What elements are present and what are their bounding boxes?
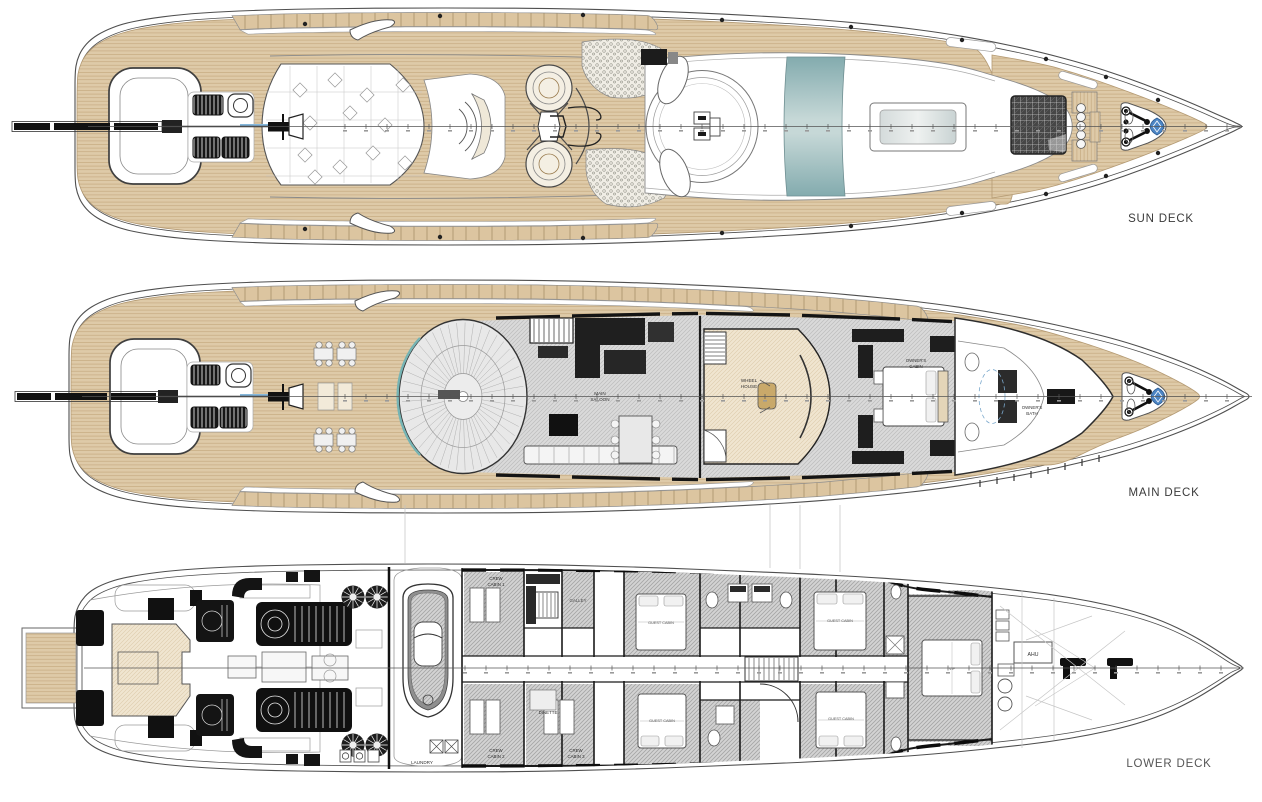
- svg-text:GALLEY: GALLEY: [569, 598, 586, 603]
- svg-text:GUEST CABIN: GUEST CABIN: [649, 719, 675, 723]
- svg-text:OWNER'S: OWNER'S: [1022, 405, 1043, 410]
- svg-text:AHU: AHU: [1028, 652, 1039, 658]
- svg-text:CABIN 3: CABIN 3: [567, 754, 585, 759]
- svg-text:CABIN 1: CABIN 1: [487, 582, 505, 587]
- svg-text:HOUSE: HOUSE: [741, 384, 757, 389]
- svg-text:MAIN DECK: MAIN DECK: [1128, 487, 1199, 499]
- svg-text:CREW: CREW: [569, 748, 583, 753]
- svg-text:WHEEL: WHEEL: [741, 378, 758, 383]
- svg-text:CABIN: CABIN: [909, 364, 922, 369]
- svg-text:OWNER'S: OWNER'S: [906, 358, 927, 363]
- svg-text:GUEST CABIN: GUEST CABIN: [828, 717, 854, 721]
- svg-text:CABIN 2: CABIN 2: [487, 754, 505, 759]
- svg-text:SALOON: SALOON: [590, 397, 609, 402]
- svg-text:VIP: VIP: [949, 667, 956, 671]
- svg-text:LOWER DECK: LOWER DECK: [1126, 758, 1211, 770]
- svg-text:LAUNDRY: LAUNDRY: [411, 760, 433, 765]
- svg-text:BATH: BATH: [1026, 411, 1037, 416]
- svg-text:GUEST CABIN: GUEST CABIN: [827, 619, 853, 623]
- svg-text:GUEST CABIN: GUEST CABIN: [648, 621, 674, 625]
- svg-text:DINETTE: DINETTE: [539, 710, 558, 715]
- svg-text:CREW: CREW: [489, 748, 503, 753]
- svg-text:CREW: CREW: [489, 576, 503, 581]
- svg-text:MAIN: MAIN: [594, 391, 605, 396]
- svg-text:SUN DECK: SUN DECK: [1128, 213, 1194, 225]
